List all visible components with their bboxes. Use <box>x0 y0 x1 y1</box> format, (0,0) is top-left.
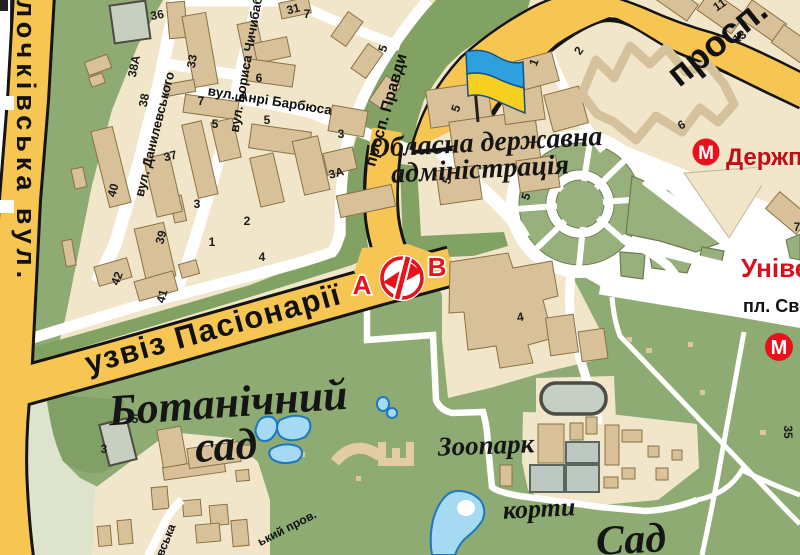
svg-text:М: М <box>698 143 714 164</box>
svg-text:2: 2 <box>244 214 251 228</box>
svg-text:7: 7 <box>794 220 800 234</box>
svg-text:пл. Сво: пл. Сво <box>743 296 800 316</box>
svg-text:сад: сад <box>193 419 258 472</box>
svg-text:Зоопарк: Зоопарк <box>436 428 536 461</box>
svg-text:В: В <box>428 252 447 282</box>
svg-text:Універс: Універс <box>741 253 800 283</box>
svg-text:5: 5 <box>132 412 139 426</box>
svg-text:7: 7 <box>198 94 205 108</box>
svg-text:Сад: Сад <box>595 515 667 555</box>
svg-text:36: 36 <box>149 7 165 23</box>
svg-text:корти: корти <box>502 492 576 525</box>
svg-text:35: 35 <box>781 425 795 439</box>
svg-text:6: 6 <box>256 71 263 85</box>
svg-text:М: М <box>771 337 788 359</box>
svg-text:7: 7 <box>304 7 311 21</box>
svg-text:33: 33 <box>184 53 200 69</box>
svg-text:3: 3 <box>194 197 201 211</box>
svg-text:3: 3 <box>101 442 108 456</box>
svg-text:5: 5 <box>264 113 271 127</box>
svg-text:Держпро: Держпро <box>726 144 800 171</box>
svg-text:лочківська вул.: лочківська вул. <box>11 0 41 283</box>
svg-text:5: 5 <box>212 117 219 131</box>
svg-text:1: 1 <box>209 235 216 249</box>
svg-text:4: 4 <box>259 250 266 264</box>
svg-text:А: А <box>353 270 372 300</box>
svg-text:3: 3 <box>338 127 345 141</box>
